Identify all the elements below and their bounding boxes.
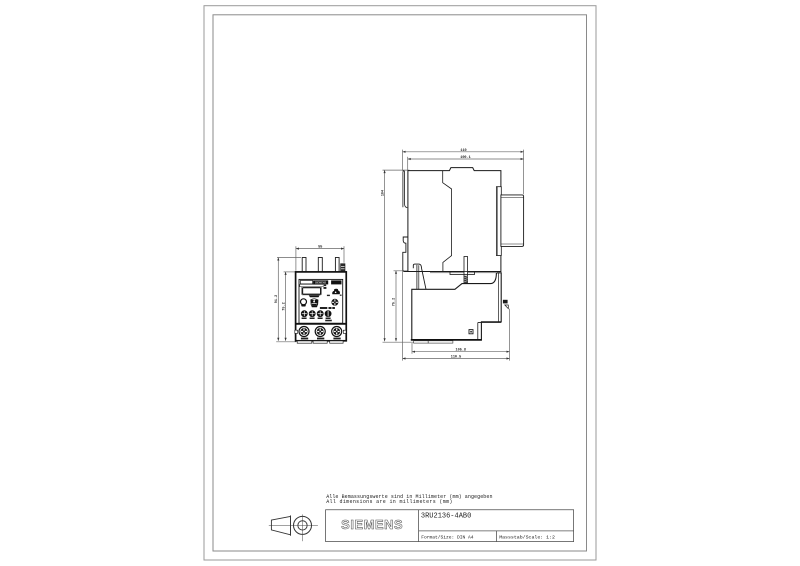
svg-text:All dimensions are in millimet: All dimensions are in millimeters (mm) bbox=[326, 499, 453, 505]
svg-text:3RU2136-4AB0: 3RU2136-4AB0 bbox=[421, 513, 471, 521]
svg-text:110: 110 bbox=[460, 149, 466, 153]
svg-text:55: 55 bbox=[318, 246, 322, 250]
svg-text:105.8: 105.8 bbox=[456, 349, 467, 353]
svg-text:SIEMENS: SIEMENS bbox=[315, 282, 327, 285]
svg-text:Format/Size: DIN A4: Format/Size: DIN A4 bbox=[421, 535, 474, 541]
svg-text:SIEMENS: SIEMENS bbox=[341, 518, 403, 532]
svg-text:Massstab/Scale: 1:2: Massstab/Scale: 1:2 bbox=[499, 535, 555, 541]
svg-text:100.1: 100.1 bbox=[460, 156, 471, 160]
svg-text:75.2: 75.2 bbox=[393, 298, 397, 306]
svg-text:75.2: 75.2 bbox=[282, 302, 286, 310]
svg-text:110.5: 110.5 bbox=[451, 356, 462, 360]
svg-text:104: 104 bbox=[381, 190, 385, 196]
svg-text:91.2: 91.2 bbox=[275, 295, 279, 303]
